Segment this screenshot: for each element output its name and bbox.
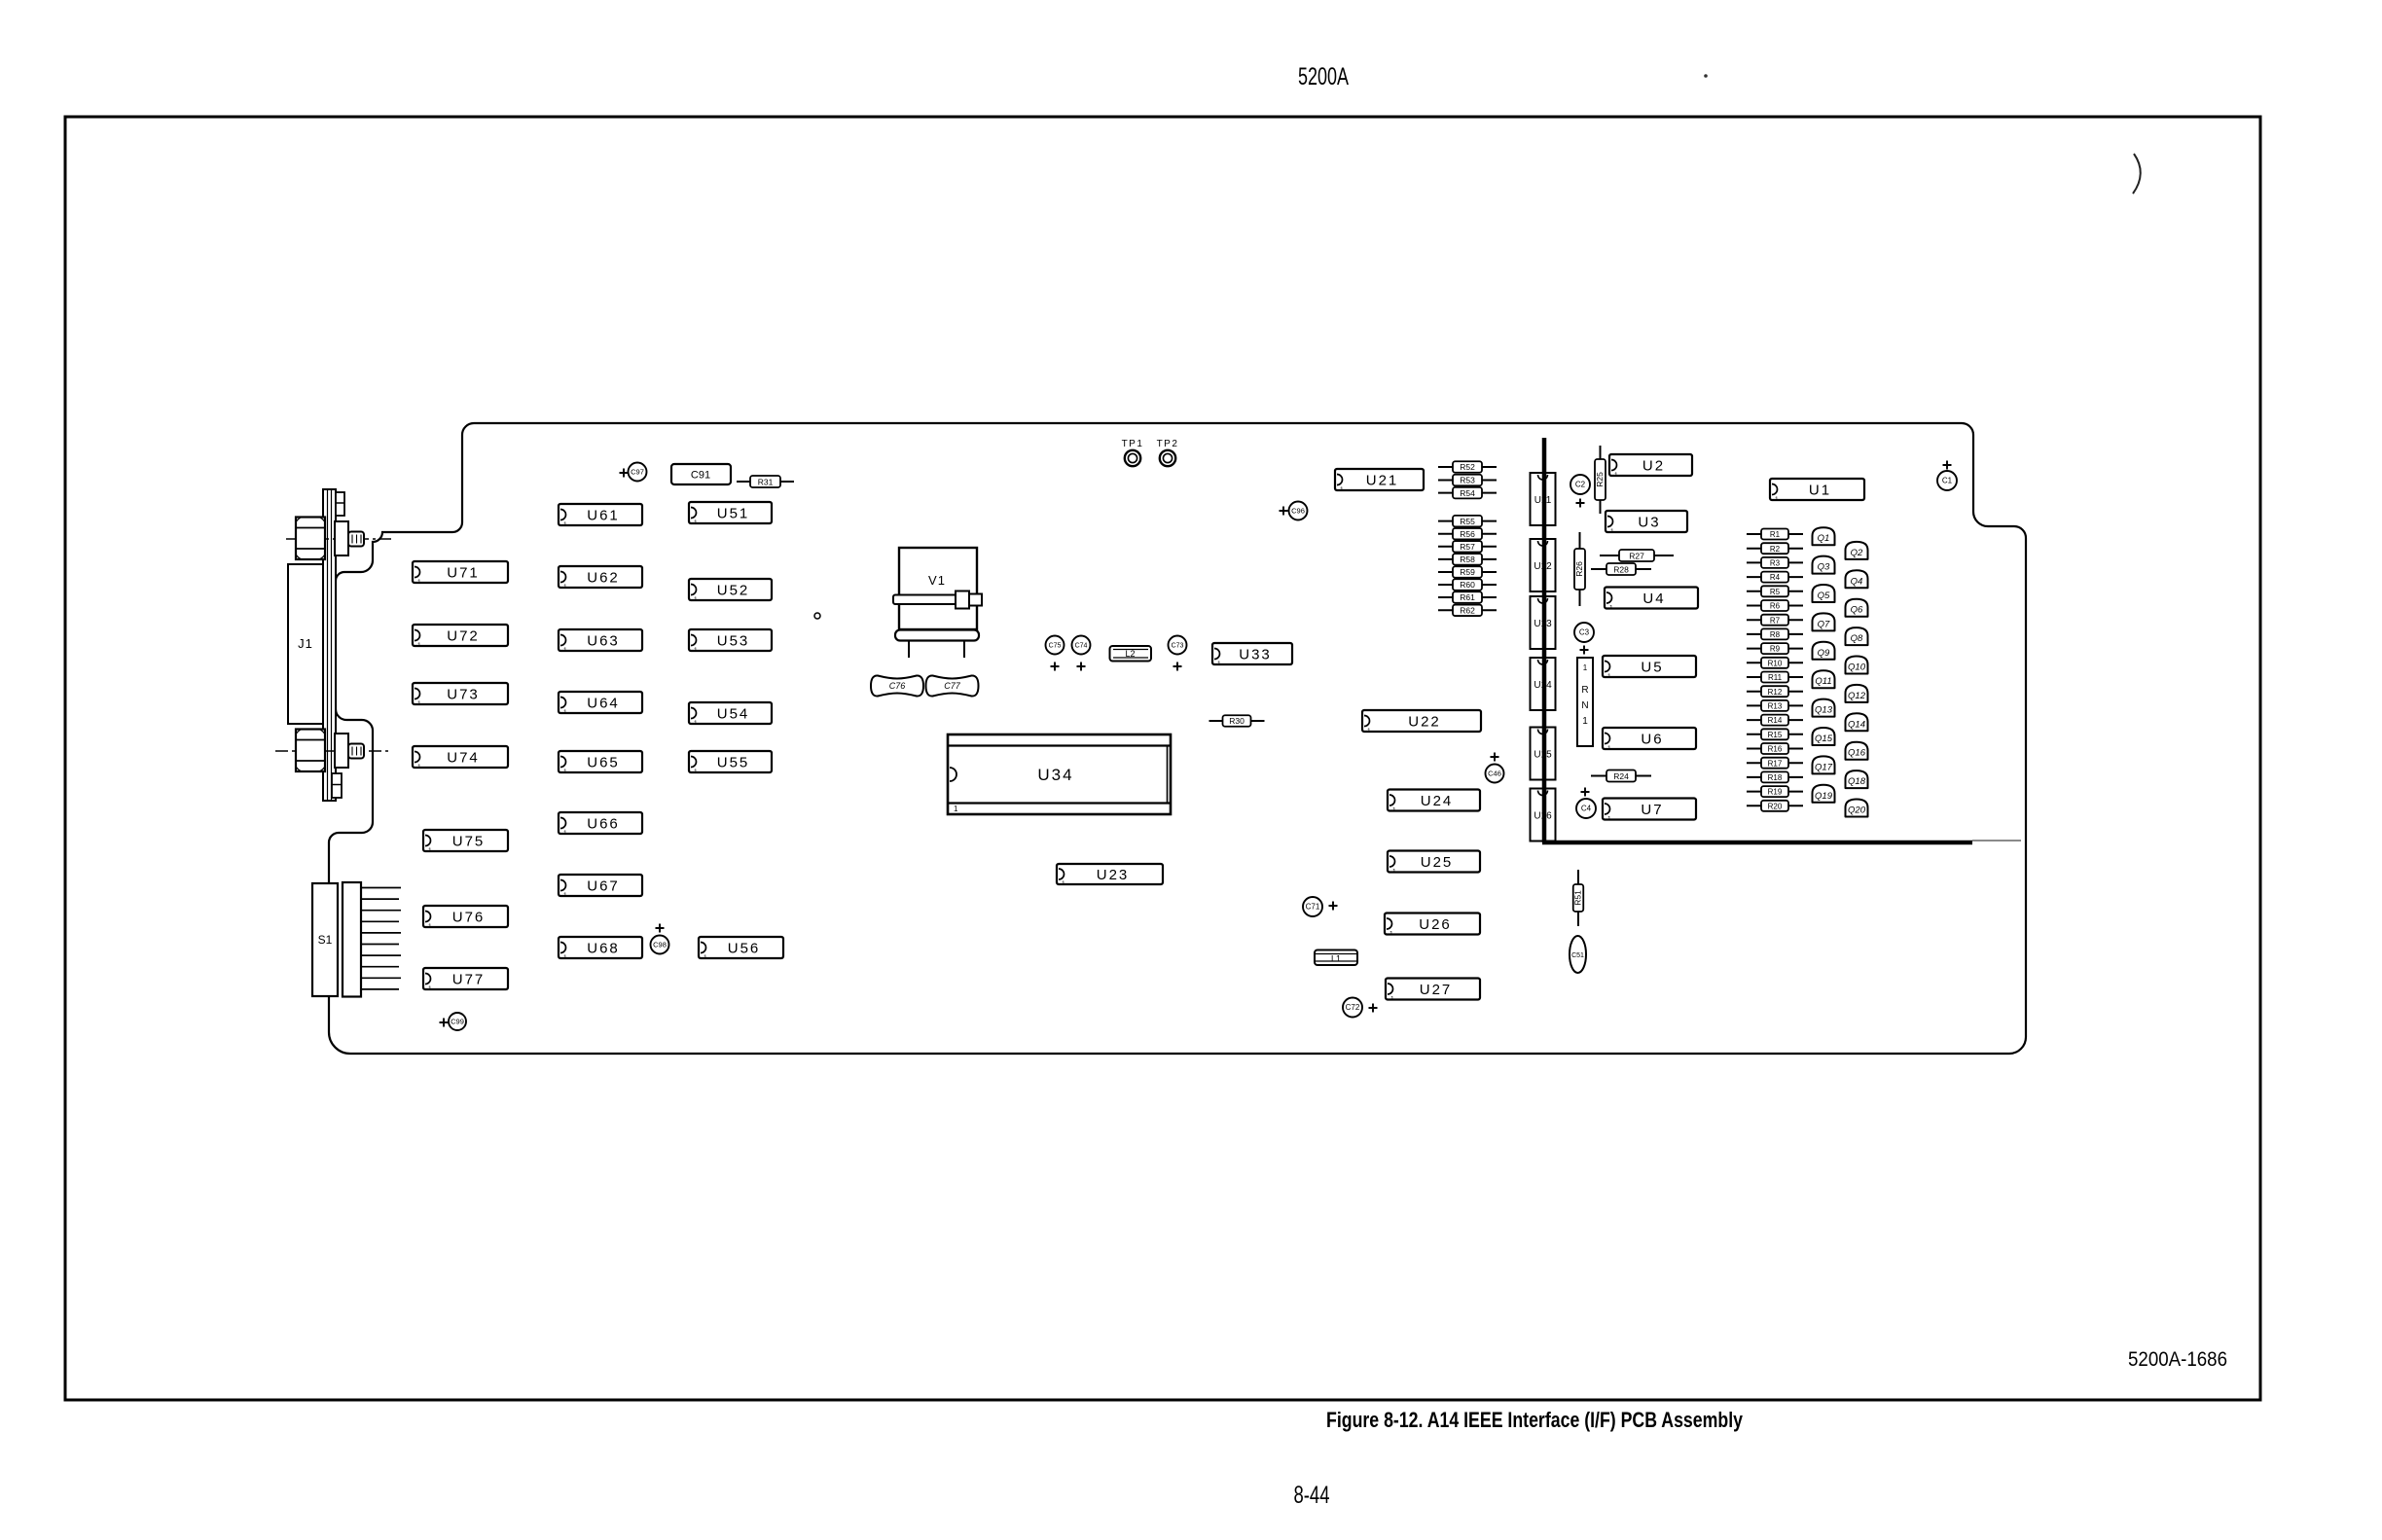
svg-text:Q15: Q15 [1815, 734, 1833, 744]
svg-text:J1: J1 [298, 636, 313, 651]
svg-text:R15: R15 [1768, 731, 1783, 739]
svg-text:R3: R3 [1770, 558, 1781, 567]
svg-text:U56: U56 [728, 940, 761, 956]
svg-text:R20: R20 [1768, 802, 1783, 810]
svg-text:U6: U6 [1641, 731, 1663, 747]
svg-text:U66: U66 [587, 815, 620, 832]
svg-text:C97: C97 [631, 468, 644, 477]
svg-text:1: 1 [1607, 816, 1611, 823]
svg-text:1: 1 [563, 647, 567, 654]
svg-text:Q5: Q5 [1818, 591, 1830, 601]
svg-text:R62: R62 [1460, 606, 1475, 616]
svg-text:U5: U5 [1641, 659, 1663, 675]
svg-text:C51: C51 [1571, 952, 1584, 959]
svg-text:U75: U75 [452, 833, 486, 849]
svg-text:C1: C1 [1942, 477, 1953, 485]
svg-text:R5: R5 [1770, 588, 1781, 596]
svg-text:Q17: Q17 [1815, 762, 1833, 772]
svg-text:C96: C96 [1291, 507, 1305, 516]
svg-text:U67: U67 [587, 877, 620, 894]
svg-text:R18: R18 [1768, 773, 1783, 782]
svg-text:U72: U72 [447, 627, 480, 644]
svg-text:C74: C74 [1075, 642, 1088, 649]
svg-text:R14: R14 [1768, 716, 1783, 725]
svg-text:U23: U23 [1097, 867, 1130, 883]
svg-text:C3: C3 [1579, 628, 1590, 637]
svg-text:U63: U63 [587, 632, 620, 649]
svg-text:Q14: Q14 [1848, 719, 1865, 730]
svg-text:R11: R11 [1768, 673, 1783, 682]
svg-text:R2: R2 [1770, 545, 1781, 554]
svg-text:U64: U64 [587, 695, 620, 711]
svg-text:R56: R56 [1460, 529, 1475, 539]
svg-text:R54: R54 [1460, 488, 1475, 498]
svg-text:Q1: Q1 [1818, 533, 1830, 544]
svg-text:1: 1 [1389, 931, 1393, 938]
svg-text:U61: U61 [587, 507, 620, 523]
svg-text:Q2: Q2 [1851, 548, 1863, 558]
svg-text:U54: U54 [717, 705, 750, 722]
svg-text:1: 1 [563, 521, 567, 528]
svg-text:R24: R24 [1613, 771, 1629, 781]
svg-text:R30: R30 [1229, 716, 1245, 726]
svg-text:U22: U22 [1408, 713, 1441, 730]
svg-text:1: 1 [1392, 807, 1396, 814]
svg-text:1: 1 [417, 764, 421, 770]
svg-text:C72: C72 [1346, 1003, 1360, 1012]
svg-text:1: 1 [704, 954, 707, 961]
svg-text:R10: R10 [1768, 659, 1783, 667]
svg-text:C2: C2 [1575, 481, 1586, 489]
svg-text:1: 1 [563, 584, 567, 591]
svg-text:5200A-1686: 5200A-1686 [2128, 1347, 2227, 1371]
svg-text:1: 1 [563, 709, 567, 716]
svg-text:U24: U24 [1421, 793, 1454, 809]
svg-text:1: 1 [1367, 728, 1371, 734]
svg-text:R12: R12 [1768, 688, 1783, 697]
svg-text:5200A: 5200A [1298, 63, 1349, 90]
svg-text:R13: R13 [1768, 701, 1783, 710]
svg-text:U52: U52 [717, 582, 750, 598]
svg-text:Q4: Q4 [1851, 576, 1863, 587]
svg-text:R9: R9 [1770, 645, 1781, 654]
svg-text:C71: C71 [1306, 903, 1320, 912]
svg-text:Q7: Q7 [1818, 619, 1830, 629]
svg-text:R6: R6 [1770, 602, 1781, 611]
svg-text:U65: U65 [587, 754, 620, 770]
svg-text:C75: C75 [1049, 642, 1062, 649]
svg-text:R16: R16 [1768, 745, 1783, 754]
svg-text:U51: U51 [717, 505, 750, 521]
svg-text:1: 1 [1392, 869, 1396, 876]
svg-text:R25: R25 [1595, 472, 1605, 487]
svg-text:U1: U1 [1809, 482, 1831, 498]
svg-text:C91: C91 [691, 470, 710, 482]
svg-text:1: 1 [563, 954, 567, 961]
svg-text:R57: R57 [1460, 542, 1475, 552]
svg-text:U73: U73 [447, 686, 480, 702]
svg-text:1: 1 [694, 519, 698, 526]
svg-text:8-44: 8-44 [1294, 1482, 1330, 1509]
svg-text:1: 1 [417, 642, 421, 649]
svg-text:C98: C98 [653, 941, 667, 949]
svg-text:R17: R17 [1768, 759, 1783, 768]
svg-text:1: 1 [1614, 472, 1618, 479]
svg-text:Q16: Q16 [1848, 748, 1866, 759]
svg-text:R51: R51 [1573, 890, 1583, 906]
svg-text:Q11: Q11 [1815, 676, 1831, 687]
svg-text:U3: U3 [1638, 514, 1660, 530]
svg-text:N: N [1581, 700, 1588, 711]
svg-text:1: 1 [563, 830, 567, 837]
svg-text:R60: R60 [1460, 580, 1475, 590]
svg-text:Q18: Q18 [1848, 776, 1866, 787]
svg-text:Q12: Q12 [1848, 691, 1866, 701]
svg-text:U62: U62 [587, 569, 620, 586]
svg-text:R59: R59 [1460, 567, 1475, 577]
svg-text:Q20: Q20 [1848, 806, 1866, 816]
svg-text:Q8: Q8 [1851, 633, 1863, 644]
svg-text:1: 1 [428, 985, 432, 992]
svg-text:1: 1 [1217, 661, 1221, 667]
svg-text:1: 1 [1610, 528, 1614, 535]
svg-text:1: 1 [417, 700, 421, 707]
svg-text:1: 1 [694, 647, 698, 654]
svg-text:TP1: TP1 [1122, 439, 1144, 449]
svg-text:V1: V1 [928, 573, 946, 588]
svg-text:1: 1 [1607, 745, 1611, 752]
svg-text:R8: R8 [1770, 630, 1781, 639]
svg-text:R28: R28 [1613, 564, 1629, 574]
svg-text:U55: U55 [717, 754, 750, 770]
svg-text:1: 1 [1390, 996, 1394, 1003]
svg-text:Q9: Q9 [1818, 648, 1830, 659]
svg-text:1: 1 [1340, 486, 1344, 493]
svg-text:1: 1 [417, 579, 421, 586]
svg-text:U74: U74 [447, 749, 480, 766]
svg-text:1: 1 [563, 892, 567, 899]
svg-text:U68: U68 [587, 940, 620, 956]
svg-text:R55: R55 [1460, 517, 1475, 526]
svg-text:C46: C46 [1488, 770, 1501, 778]
svg-text:R: R [1581, 685, 1588, 696]
svg-text:Q3: Q3 [1818, 562, 1830, 573]
svg-text:R52: R52 [1460, 462, 1475, 472]
svg-text:1: 1 [1062, 880, 1065, 887]
svg-text:U71: U71 [447, 564, 480, 581]
svg-text:U33: U33 [1239, 646, 1272, 663]
svg-text:1: 1 [694, 769, 698, 775]
svg-text:R53: R53 [1460, 476, 1475, 485]
svg-text:C76: C76 [889, 681, 906, 691]
svg-text:U21: U21 [1366, 472, 1399, 488]
svg-text:1: 1 [954, 805, 958, 813]
svg-text:U34: U34 [1037, 766, 1073, 784]
svg-text:U25: U25 [1421, 854, 1454, 871]
svg-text:U26: U26 [1419, 916, 1452, 933]
svg-text:1: 1 [1609, 605, 1613, 612]
svg-text:R61: R61 [1460, 592, 1475, 602]
svg-text:C73: C73 [1172, 642, 1184, 649]
svg-text:U77: U77 [452, 971, 486, 987]
svg-text:1: 1 [1583, 663, 1588, 672]
svg-text:1: 1 [694, 596, 698, 603]
svg-text:Q13: Q13 [1815, 705, 1833, 716]
svg-text:L2: L2 [1125, 649, 1135, 659]
svg-text:U27: U27 [1420, 982, 1453, 998]
svg-text:1: 1 [694, 720, 698, 727]
svg-text:1: 1 [1775, 496, 1779, 503]
svg-text:Q6: Q6 [1851, 605, 1863, 616]
svg-text:Q10: Q10 [1848, 663, 1866, 673]
svg-text:U76: U76 [452, 909, 486, 925]
svg-text:1: 1 [1582, 716, 1588, 727]
svg-text:R31: R31 [758, 477, 774, 486]
svg-text:R58: R58 [1460, 555, 1475, 564]
svg-text:Q19: Q19 [1815, 791, 1833, 802]
svg-text:R7: R7 [1770, 616, 1781, 625]
svg-text:1: 1 [428, 923, 432, 930]
svg-text:U53: U53 [717, 632, 750, 649]
svg-text:U2: U2 [1642, 457, 1665, 474]
svg-text:L1: L1 [1331, 954, 1341, 964]
svg-text:1: 1 [1607, 673, 1611, 680]
svg-text:1: 1 [428, 847, 432, 854]
svg-text:R27: R27 [1629, 551, 1644, 560]
svg-text:C99: C99 [451, 1018, 464, 1026]
svg-text:TP2: TP2 [1157, 439, 1179, 449]
svg-text:Figure 8-12. A14 IEEE Interfac: Figure 8-12. A14 IEEE Interface (I/F) PC… [1326, 1408, 1744, 1432]
svg-text:R1: R1 [1770, 530, 1781, 539]
svg-text:U4: U4 [1642, 591, 1665, 607]
svg-text:U7: U7 [1641, 802, 1663, 818]
svg-text:C4: C4 [1581, 805, 1592, 813]
svg-text:R4: R4 [1770, 573, 1781, 582]
svg-text:1: 1 [563, 769, 567, 775]
svg-text:C77: C77 [944, 681, 961, 691]
svg-text:R26: R26 [1574, 561, 1584, 577]
svg-text:R19: R19 [1768, 788, 1783, 797]
svg-text:S1: S1 [318, 933, 333, 947]
